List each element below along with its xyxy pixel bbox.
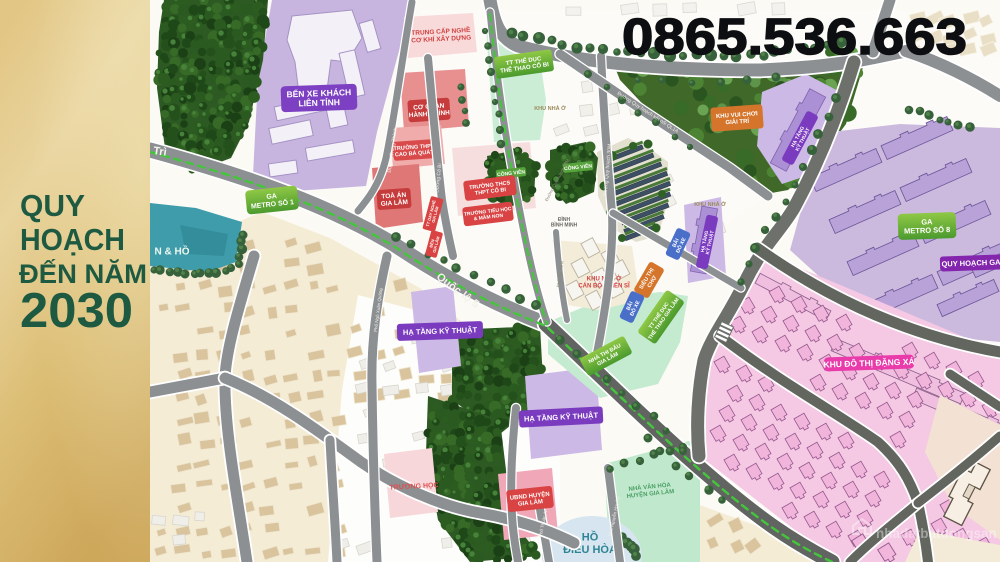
svg-text:HOẠCH: HOẠCH [20, 222, 125, 257]
svg-text:KHU NHÀ Ở: KHU NHÀ Ở [534, 105, 566, 112]
svg-text:METRO SỐ 8: METRO SỐ 8 [904, 224, 951, 236]
svg-text:LIÊN TỈNH: LIÊN TỈNH [298, 96, 340, 108]
svg-text:2030: 2030 [20, 284, 133, 338]
svg-text:KHU NHÀ Ở: KHU NHÀ Ở [694, 201, 726, 208]
svg-text:nhadatbatdongsan: nhadatbatdongsan [876, 526, 997, 541]
svg-text:0865.536.663: 0865.536.663 [622, 8, 967, 65]
svg-text:BÌNH MINH: BÌNH MINH [551, 221, 578, 229]
svg-text:HỒ: HỒ [582, 531, 599, 544]
svg-text:QUY: QUY [20, 188, 85, 223]
svg-text:Trì: Trì [152, 145, 167, 159]
svg-text:N & HỒ: N & HỒ [155, 245, 190, 258]
svg-text:GA: GA [266, 193, 277, 201]
